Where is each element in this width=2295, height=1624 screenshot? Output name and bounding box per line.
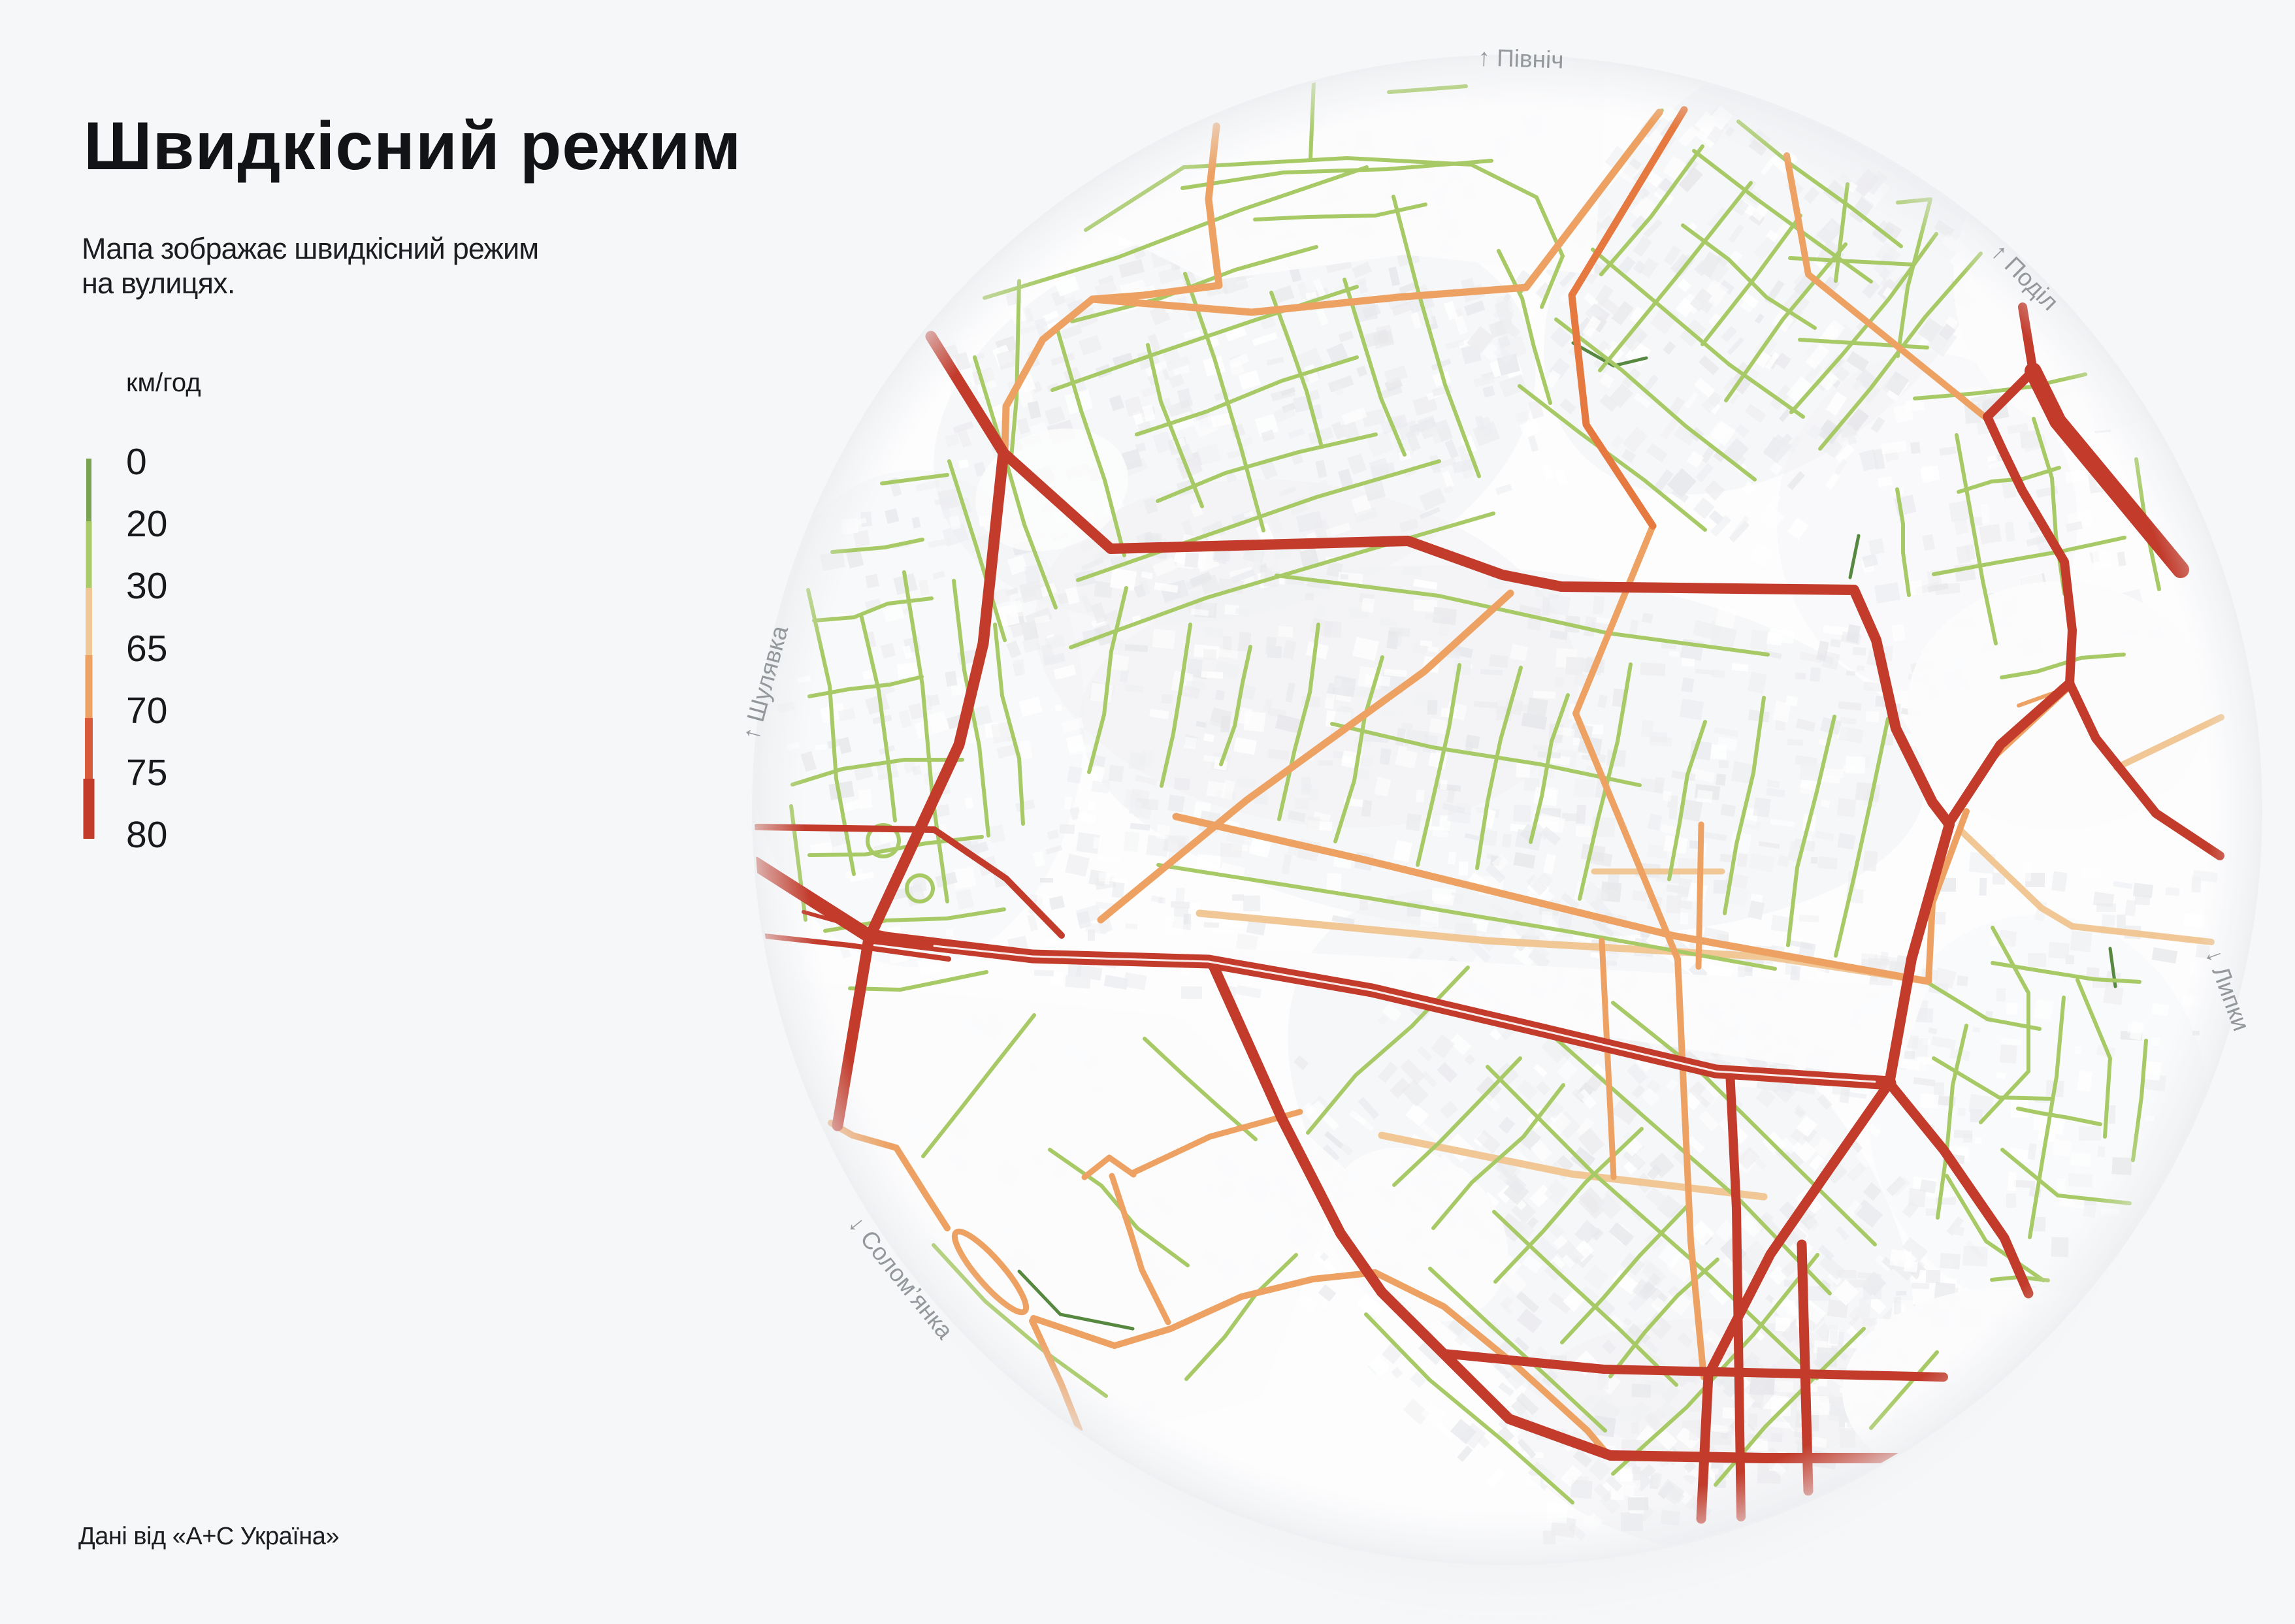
svg-text:Мапа зображає швидкісний режим: Мапа зображає швидкісний режим — [82, 232, 538, 265]
svg-text:Швидкісний режим: Швидкісний режим — [84, 108, 741, 184]
svg-text:20: 20 — [126, 503, 167, 545]
svg-text:75: 75 — [126, 752, 167, 794]
svg-text:Дані від «А+С Україна»: Дані від «А+С Україна» — [78, 1523, 339, 1550]
svg-text:0: 0 — [126, 441, 147, 483]
svg-text:65: 65 — [126, 628, 167, 670]
svg-text:80: 80 — [126, 814, 167, 856]
svg-text:↑ Північ: ↑ Північ — [1478, 44, 1565, 74]
svg-text:30: 30 — [126, 565, 167, 607]
svg-text:70: 70 — [126, 690, 167, 732]
svg-text:км/год: км/год — [126, 368, 201, 397]
svg-text:на вулицях.: на вулицях. — [82, 267, 235, 300]
